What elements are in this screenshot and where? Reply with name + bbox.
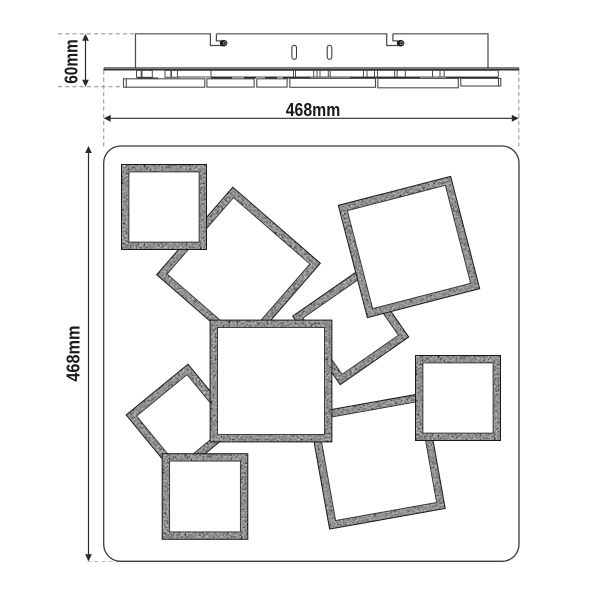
svg-text:60mm: 60mm xyxy=(61,39,82,84)
svg-text:468mm: 468mm xyxy=(63,326,84,382)
svg-text:468mm: 468mm xyxy=(286,99,341,120)
